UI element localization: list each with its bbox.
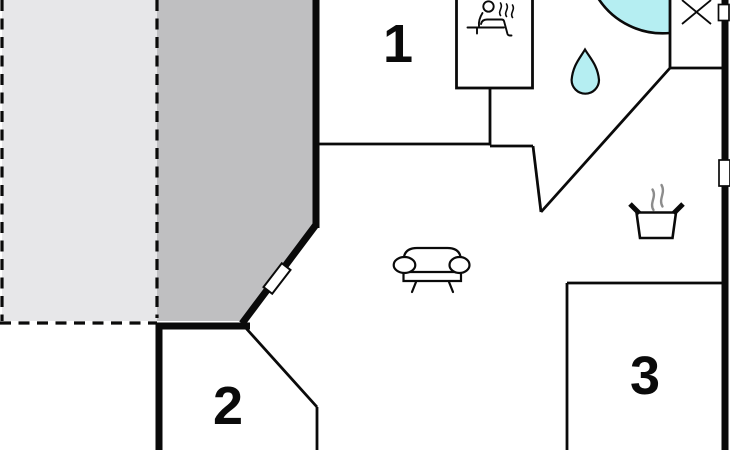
pot-body xyxy=(637,213,677,239)
sofa-armrest-left xyxy=(394,257,416,273)
room-3-label: 3 xyxy=(630,346,660,406)
sauna-person-head xyxy=(483,1,493,11)
floor-plan: 1 2 3 xyxy=(0,0,730,450)
wall-room2-diagonal xyxy=(244,326,317,407)
pot-steam xyxy=(652,185,663,210)
sofa-armrest-right xyxy=(450,257,470,273)
covered-terrace-area xyxy=(157,0,318,321)
sofa-icon xyxy=(394,248,470,292)
room-1-label: 1 xyxy=(383,14,413,74)
sofa-legs xyxy=(412,282,453,292)
window-cross-icon xyxy=(682,0,711,24)
wall-bath-diagonal xyxy=(541,68,670,212)
room-2-label: 2 xyxy=(213,376,243,436)
window-icon-top xyxy=(719,5,730,21)
water-drop-icon xyxy=(572,50,599,94)
sauna-cabin xyxy=(457,0,533,88)
open-terrace-area xyxy=(2,0,157,321)
floor-plan-canvas: 1 2 3 xyxy=(0,0,730,450)
window-icon-middle xyxy=(719,160,730,186)
cooking-pot-icon xyxy=(630,185,683,238)
wall-bath-left xyxy=(533,146,541,212)
